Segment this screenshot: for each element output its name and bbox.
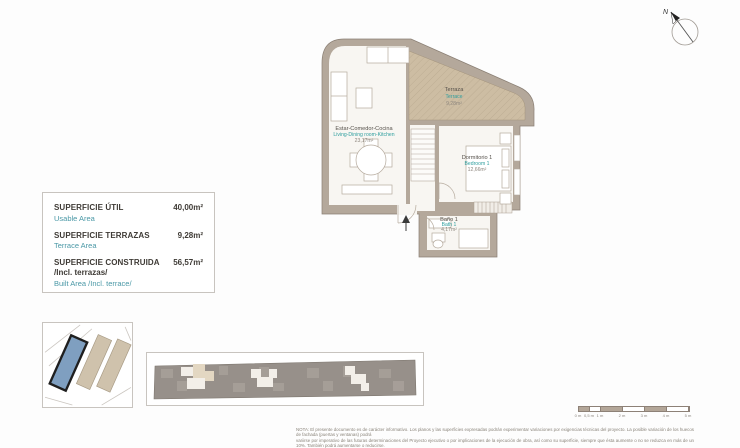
floor-plan: Terraza Terrace 9,28m² Estar-Comedor-Coc… [314,33,574,293]
built-area-label-es2: /Incl. terrazas/ [54,268,203,277]
usable-area-label-es: SUPERFICIE ÚTIL [54,203,124,212]
living-area-value: 23,17m² [355,138,374,144]
building-key-plan [146,352,424,406]
built-area-label-es: SUPERFICIE CONSTRUIDA [54,258,160,267]
terrace-area-label-en: Terrace Area [54,241,203,250]
site-location-map [42,322,133,408]
built-area-value: 56,57m² [173,258,203,267]
scale-tick-label: 0 m [575,413,582,418]
table-row: SUPERFICIE CONSTRUIDA 56,57m² /Incl. ter… [54,258,203,288]
scale-tick-label: 0,5 m [584,413,594,418]
disclaimer-line-1: NOTA: El presente documento es de caráct… [296,427,694,438]
kitchen-counter [342,185,392,194]
bedroom-area-value: 12,66m² [468,167,487,173]
scale-tick-label: 3 m [641,413,648,418]
scale-tick-label: 5 m [685,413,692,418]
scale-tick-label: 4 m [663,413,670,418]
terrace-area-value: 9,28m² [178,231,203,240]
terrace-label-es: Terraza [445,87,465,93]
usable-area-value: 40,00m² [173,203,203,212]
entrance-arrow-icon [402,215,410,231]
compass-n-label: N [663,9,669,16]
compass-north-icon: N [655,2,715,58]
bath-area-value: 4,17m² [441,227,457,233]
staircase [411,129,435,181]
table-row: SUPERFICIE TERRAZAS 9,28m² Terrace Area [54,231,203,251]
area-summary-table: SUPERFICIE ÚTIL 40,00m² Usable Area SUPE… [42,192,215,293]
table-row: SUPERFICIE ÚTIL 40,00m² Usable Area [54,203,203,223]
terrace-area-value: 9,28m² [446,101,462,107]
terrace-area-label-es: SUPERFICIE TERRAZAS [54,231,150,240]
built-area-label-en: Built Area /Incl. terrace/ [54,279,203,288]
disclaimer-line-2: variirse por imperativo de las futuras d… [296,438,694,448]
scale-tick-label: 1 m [597,413,604,418]
terrace-label-en: Terrace [446,94,463,100]
scale-tick-label: 2 m [619,413,626,418]
usable-area-label-en: Usable Area [54,214,203,223]
scale-bar: 0 m 0,5 m 1 m 2 m 3 m 4 m 5 m [578,406,696,418]
